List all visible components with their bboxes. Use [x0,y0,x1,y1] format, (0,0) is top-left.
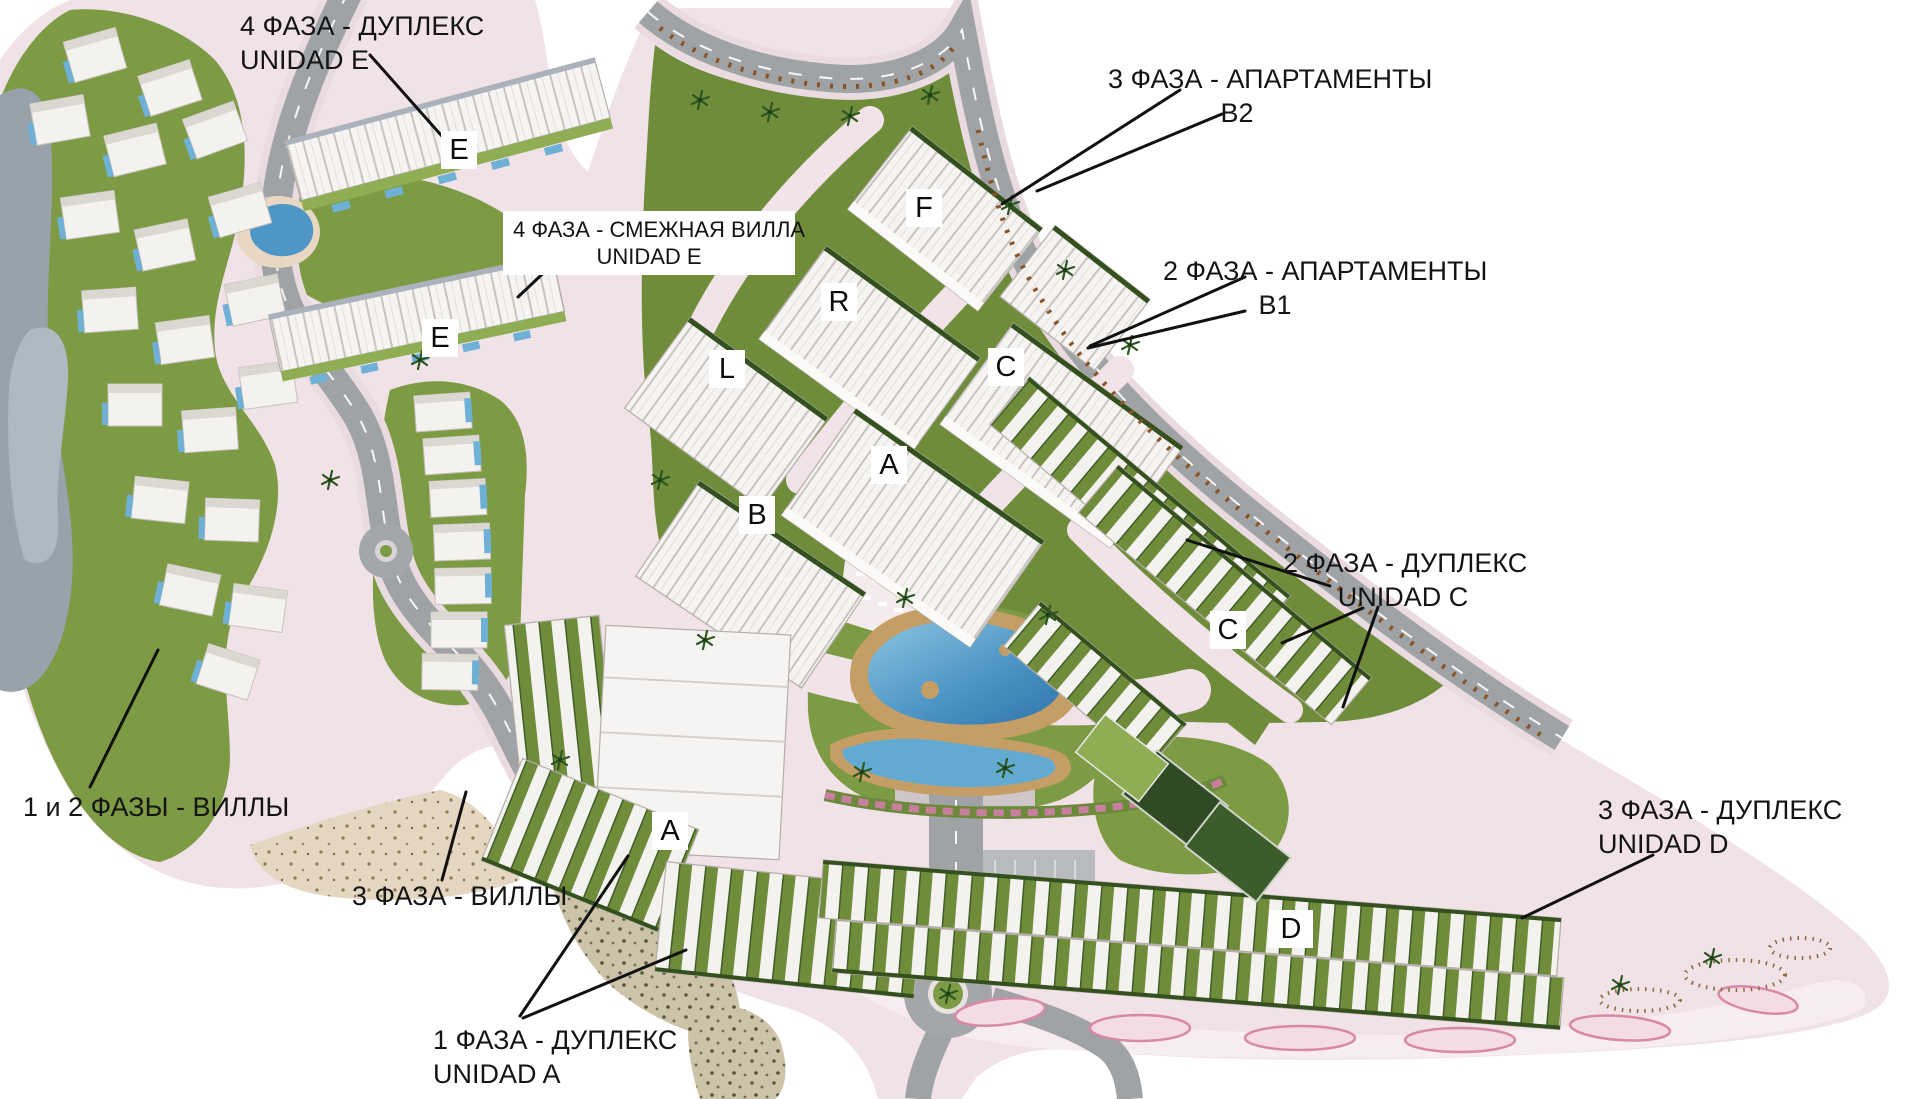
annotation-phase2-apartments-b1: 2 ФАЗА - АПАРТАМЕНТЫ В1 [1163,254,1483,322]
annotation-phase1-duplex-a: 1 ФАЗА - ДУПЛЕКС UNIDAD A [433,1023,677,1091]
annotation-line1: 4 ФАЗА - ДУПЛЕКС [240,9,484,43]
annotation-phase12-villas: 1 и 2 ФАЗЫ - ВИЛЛЫ [23,790,289,824]
annotation-line2: UNIDAD C [1283,580,1523,614]
annotation-phase3-villas: 3 ФАЗА - ВИЛЛЫ [352,879,567,913]
building-marker-a-duplex: A [652,812,688,850]
annotation-line1: 2 ФАЗА - ДУПЛЕКС [1283,546,1523,580]
site-plan-graphic [0,0,1920,1099]
annotation-line1: 2 ФАЗА - АПАРТАМЕНТЫ [1163,254,1483,288]
building-marker-l: L [709,350,745,388]
annotation-phase4-duplex-e: 4 ФАЗА - ДУПЛЕКС UNIDAD E [240,9,484,77]
annotation-line2: UNIDAD D [1598,827,1842,861]
building-marker-f: F [906,189,942,227]
building-marker-r: R [821,283,857,321]
pool-island [921,681,939,699]
rocks-bottom [688,1004,785,1099]
annotation-phase2-duplex-c: 2 ФАЗА - ДУПЛЕКС UNIDAD C [1283,546,1523,614]
annotation-phase4-adjoining-villa-e: 4 ФАЗА - СМЕЖНАЯ ВИЛЛА UNIDAD E [503,211,795,275]
annotation-line2: UNIDAD E [513,243,785,270]
building-marker-a-central: A [871,446,907,484]
annotation-line1: 4 ФАЗА - СМЕЖНАЯ ВИЛЛА [513,216,785,243]
roundabout-small [359,524,413,578]
annotation-phase3-apartments-b2: 3 ФАЗА - АПАРТАМЕНТЫ В2 [1108,62,1428,130]
annotation-line2: В1 [1163,288,1483,322]
building-marker-c-duplex: C [1210,611,1246,649]
annotation-line2: В2 [1108,96,1428,130]
annotation-line1: 3 ФАЗА - АПАРТАМЕНТЫ [1108,62,1428,96]
annotation-line1: 3 ФАЗА - ВИЛЛЫ [352,879,567,913]
annotation-line1: 3 ФАЗА - ДУПЛЕКС [1598,793,1842,827]
annotation-line2: UNIDAD A [433,1057,677,1091]
annotation-phase3-duplex-d: 3 ФАЗА - ДУПЛЕКС UNIDAD D [1598,793,1842,861]
building-marker-c-upper: C [988,348,1024,386]
masterplan-image: E E F R L C A B C A D 4 ФАЗА - ДУПЛЕКС U… [0,0,1920,1099]
annotation-line1: 1 и 2 ФАЗЫ - ВИЛЛЫ [23,790,289,824]
building-marker-e-lower: E [422,319,458,357]
annotation-line1: 1 ФАЗА - ДУПЛЕКС [433,1023,677,1057]
building-marker-b: B [739,496,775,534]
annotation-line2: UNIDAD E [240,43,484,77]
building-marker-e-upper: E [441,131,477,169]
building-marker-d: D [1269,910,1313,948]
